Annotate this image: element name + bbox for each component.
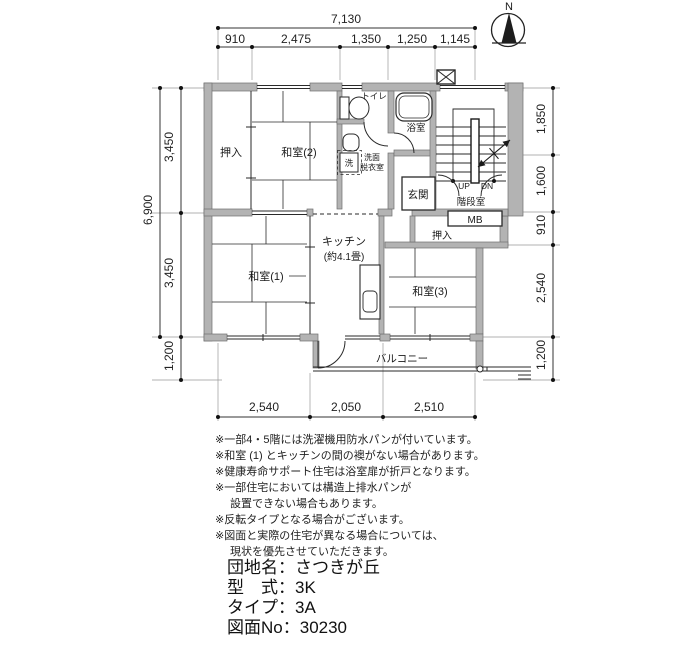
dim-left-total: 6,900 [141, 195, 155, 225]
info-value: 3A [295, 598, 316, 617]
label-washer: 洗 [345, 158, 354, 168]
label-washitsu-3: 和室(3) [412, 284, 447, 298]
info-separator: ： [283, 618, 300, 637]
info-drawing-no: 図面No：30230 [227, 618, 380, 638]
dim-bottom-2: 2,050 [331, 400, 361, 414]
room-labels: 押入 和室(2) トイレ 浴室 洗面 脱衣室 洗 玄関 階段室 UP DN MB… [220, 91, 493, 365]
dim-right-2: 1,600 [534, 166, 548, 196]
label-balcony: バルコニー [376, 353, 428, 365]
label-washitsu-2: 和室(2) [281, 145, 316, 159]
note-line: ※一部4・5階には洗濯機用防水パンが付いています。 [215, 432, 485, 448]
floor-plan-drawing: 7,130 910 2,475 1,350 1,250 1,145 6,900 … [0, 0, 700, 430]
toilet-tank [340, 97, 349, 119]
toilet-door-arc [364, 122, 388, 146]
bottom-dimensions: 2,540 2,050 2,510 [216, 400, 477, 419]
info-label: 団地名 [227, 558, 278, 577]
info-label: 図面No [227, 618, 283, 637]
label-mb: MB [468, 215, 483, 226]
dim-right-3: 910 [534, 215, 548, 235]
top-dimensions: 7,130 910 2,475 1,350 1,250 1,145 [216, 12, 477, 49]
dim-bottom-1: 2,540 [249, 400, 279, 414]
note-line: 設置できない場合もあります。 [215, 496, 485, 512]
dim-top-1: 910 [225, 32, 245, 46]
info-label: タイプ [227, 598, 278, 617]
info-value: さつきが丘 [295, 558, 380, 577]
note-line: ※図面と実際の住宅が異なる場合については、 [215, 528, 485, 544]
label-bath: 浴室 [406, 122, 425, 134]
drain-circle [477, 366, 483, 372]
dim-left-upper: 3,450 [162, 132, 176, 162]
dim-top-total: 7,130 [331, 12, 361, 26]
dim-right-4: 2,540 [534, 273, 548, 303]
info-separator: ： [278, 598, 295, 617]
info-value: 3K [295, 578, 316, 597]
note-line: ※一部住宅においては構造上排水パンが [215, 480, 485, 496]
note-line: ※和室 (1) とキッチンの間の襖がない場合があります。 [215, 448, 485, 464]
dim-top-5: 1,145 [440, 32, 470, 46]
right-dimensions: 1,850 1,600 910 2,540 1,200 [534, 86, 555, 382]
label-genkan: 玄関 [408, 188, 429, 201]
label-oshiire-2: 押入 [220, 145, 242, 159]
label-up: UP [458, 181, 470, 191]
washbasin [343, 134, 359, 151]
dim-left-balcony: 1,200 [162, 341, 176, 371]
dim-bottom-3: 2,510 [414, 400, 444, 414]
label-oshiire-3: 押入 [432, 229, 452, 242]
stair-center-rail [471, 119, 479, 183]
entry-door-left-arc [438, 175, 459, 196]
balcony-railing [313, 366, 531, 379]
note-line: ※健康寿命サポート住宅は浴室扉が折戸となります。 [215, 464, 485, 480]
north-arrow-icon: N [492, 1, 527, 47]
label-washroom-2: 脱衣室 [360, 162, 384, 172]
info-label: 型 式 [227, 578, 278, 597]
info-separator: ： [278, 578, 295, 597]
info-model: 型 式：3K [227, 578, 380, 598]
dim-top-2: 2,475 [281, 32, 311, 46]
balcony-door-arc [318, 341, 345, 368]
info-value: 30230 [300, 618, 347, 637]
label-kitchen: キッチン [322, 235, 366, 248]
kitchen-sink [363, 291, 377, 312]
info-danchi-name: 団地名：さつきが丘 [227, 558, 380, 578]
plan-info-block: 団地名：さつきが丘 型 式：3K タイプ：3A 図面No：30230 [227, 558, 380, 638]
label-toilet: トイレ [361, 91, 387, 101]
label-washitsu-1: 和室(1) [248, 269, 283, 283]
label-kitchen-size: (約4.1畳) [324, 250, 365, 263]
dim-top-3: 1,350 [351, 32, 381, 46]
info-separator: ： [278, 558, 295, 577]
dim-right-5: 1,200 [534, 340, 548, 370]
dim-right-1: 1,850 [534, 104, 548, 134]
stairs [436, 109, 510, 183]
note-line: ※反転タイプとなる場合がございます。 [215, 512, 485, 528]
label-washroom-1: 洗面 [364, 152, 380, 162]
left-dimensions: 6,900 3,450 3,450 1,200 [141, 86, 183, 382]
notes-block: ※一部4・5階には洗濯機用防水パンが付いています。 ※和室 (1) とキッチンの… [215, 432, 485, 560]
info-type: タイプ：3A [227, 598, 380, 618]
label-stairwell: 階段室 [457, 196, 486, 208]
dim-top-4: 1,250 [397, 32, 427, 46]
dim-left-lower: 3,450 [162, 258, 176, 288]
label-dn: DN [481, 181, 493, 191]
north-label: N [505, 1, 513, 13]
